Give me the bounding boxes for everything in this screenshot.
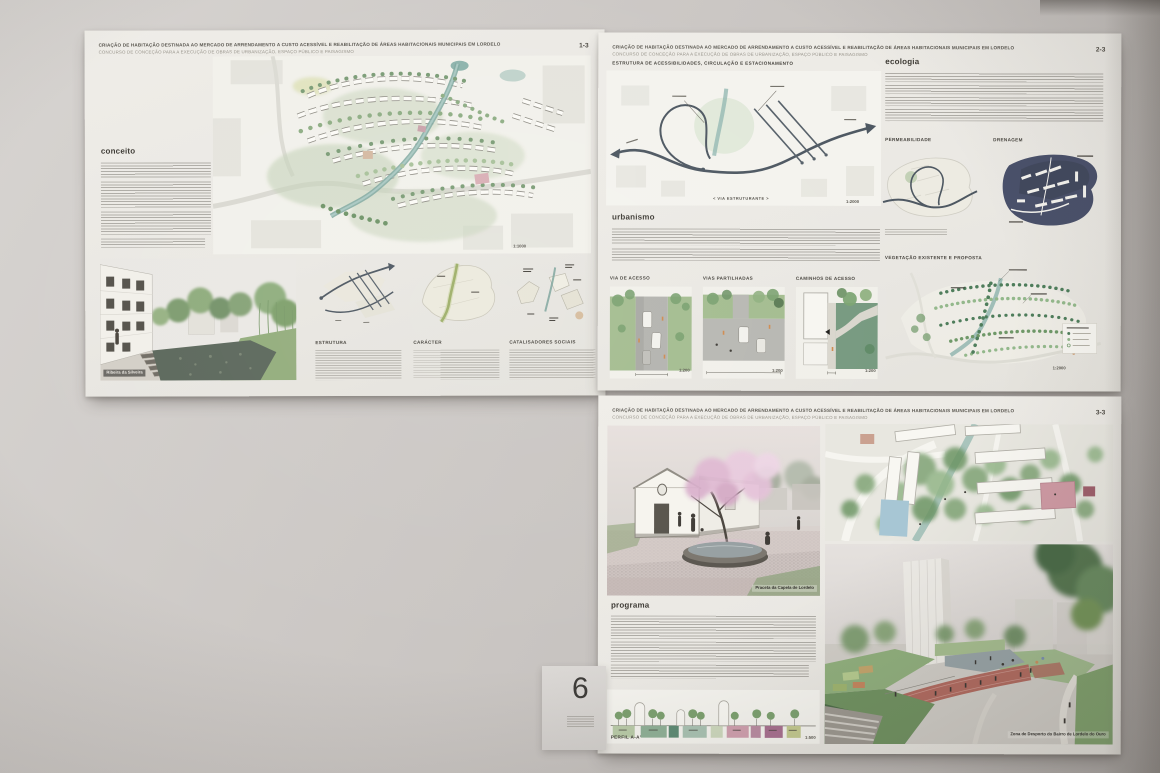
profile-scale: 1:500 (805, 735, 816, 740)
sports-render-illustration (825, 544, 1113, 745)
vegetation-scale: 1:2000 (1053, 365, 1066, 370)
street3-heading: CAMINHOS DE ACESSO (796, 276, 855, 281)
apartment-building (100, 265, 152, 365)
ecology-paragraph-1 (885, 73, 1103, 82)
masterplan-scale: 1:1000 (513, 244, 526, 249)
structure-heading: ESTRUTURA (315, 340, 346, 345)
street1-plan: 1:200 (610, 286, 692, 378)
street3-plan: 1:200 (796, 287, 878, 379)
board-panel-3: CRIAÇÃO DE HABITAÇÃO DESTINADA AO MERCAD… (598, 396, 1122, 755)
catalysts-heading: CATALISADORES SOCIAIS (509, 339, 575, 344)
profile-label: PERFIL A-A' (611, 735, 641, 740)
concept-paragraph-2 (101, 181, 211, 207)
person (115, 329, 119, 345)
pool (879, 499, 909, 536)
wall-label-card: 6 (542, 666, 606, 750)
pond-render-caption: Ribeira da Silveira (103, 370, 145, 377)
permeability-legend (885, 229, 947, 235)
street2-scale: 1:200 (772, 368, 783, 373)
vegetation-heading: VEGETAÇÃO EXISTENTE E PROPOSTA (885, 255, 982, 260)
program-paragraph-2 (611, 642, 816, 662)
urbanism-heading: urbanismo (612, 212, 655, 221)
street2-illustration (703, 287, 785, 379)
chapel-render-caption: Praceta da Capela de Lordelo (752, 585, 817, 592)
wall-label-credits (567, 716, 594, 727)
pond-render-illustration (100, 258, 296, 381)
catalysts-paragraph (509, 349, 595, 379)
program-heading: programa (611, 601, 650, 610)
board-panel-1: CRIAÇÃO DE HABITAÇÃO DESTINADA AO MERCAD… (85, 29, 606, 396)
panel2-subtitle: CONCURSO DE CONCEÇÃO PARA A EXECUÇÃO DE … (612, 51, 1082, 58)
pond-render: Ribeira da Silveira (100, 258, 296, 381)
panel1-subtitle: CONCURSO DE CONCEÇÃO PARA A EXECUÇÃO DE … (99, 48, 569, 55)
structure-paragraph (315, 350, 401, 380)
structure-column: ESTRUTURA (315, 258, 403, 382)
street2-heading: VIAS PARTILHADAS (703, 276, 753, 281)
concept-paragraph-3 (101, 211, 211, 234)
wall-shadow-top (1040, 0, 1160, 16)
structure-diagram (315, 258, 403, 330)
street3-illustration (796, 287, 878, 379)
board-panel-2: CRIAÇÃO DE HABITAÇÃO DESTINADA AO MERCAD… (598, 32, 1122, 391)
detail-plan-illustration (825, 424, 1113, 542)
concept-heading: conceito (101, 147, 136, 156)
drainage-heading: DRENAGEM (993, 137, 1023, 142)
panel3-title: CRIAÇÃO DE HABITAÇÃO DESTINADA AO MERCAD… (612, 408, 1082, 415)
sports-render: Zona de Desporto do Bairro de Lordelo do… (825, 544, 1113, 745)
structural-road-label: < VIA ESTRUTURANTE > (696, 196, 786, 201)
masterplan-illustration (213, 55, 592, 254)
chapel-render: Praceta da Capela de Lordelo (607, 426, 820, 596)
vegetation-map (881, 263, 1105, 377)
catalysts-column: CATALISADORES SOCIAIS (509, 257, 597, 381)
panel3-subtitle: CONCURSO DE CONCEÇÃO PARA A EXECUÇÃO DE … (612, 415, 1082, 422)
permeability-diagram (881, 147, 981, 227)
panel1-page-number: 1-3 (579, 42, 588, 49)
ecology-paragraph-3 (885, 97, 1103, 106)
program-paragraph-1 (611, 616, 816, 639)
concept-paragraph-1 (101, 162, 211, 177)
ecology-paragraph-4 (885, 109, 1103, 121)
character-heading: CARÁCTER (413, 340, 442, 345)
ecology-heading: ecologia (885, 57, 919, 66)
wall-shadow-right (1104, 0, 1160, 773)
profile-section: PERFIL A-A' 1:500 (607, 690, 820, 744)
sports-render-caption: Zona de Desporto do Bairro de Lordelo do… (1007, 732, 1108, 739)
urbanism-paragraph-1 (612, 228, 880, 246)
fountain (682, 542, 768, 568)
sports-court (1041, 482, 1076, 510)
street3-scale: 1:200 (865, 368, 876, 373)
catalysts-diagram (509, 257, 597, 329)
street1-heading: VIA DE ACESSO (610, 275, 650, 280)
accessibility-scale: 1:2000 (846, 199, 859, 204)
legend-box (1063, 323, 1097, 353)
urbanism-paragraph-2 (612, 248, 880, 261)
accessibility-diagram (606, 70, 881, 206)
street1-scale: 1:200 (679, 368, 690, 373)
wall-label-number: 6 (572, 672, 589, 706)
drainage-diagram (991, 145, 1105, 229)
character-column: CARÁCTER (413, 258, 501, 382)
ecology-paragraph-2 (885, 85, 1103, 94)
concept-paragraph-4 (101, 238, 205, 247)
panel2-title: CRIAÇÃO DE HABITAÇÃO DESTINADA AO MERCAD… (612, 44, 1082, 51)
street1-illustration (610, 286, 692, 378)
chapel-render-illustration (607, 426, 820, 596)
permeability-heading: PERMEABILIDADE (885, 137, 931, 142)
character-paragraph (413, 350, 499, 380)
accessibility-heading: ESTRUTURA DE ACESSIBILIDADES, CIRCULAÇÃO… (612, 60, 793, 65)
gallery-wall-photo: CRIAÇÃO DE HABITAÇÃO DESTINADA AO MERCAD… (0, 0, 1160, 773)
program-paragraph-3 (611, 665, 809, 679)
street2-plan: 1:200 (703, 287, 785, 379)
character-diagram (413, 258, 501, 330)
